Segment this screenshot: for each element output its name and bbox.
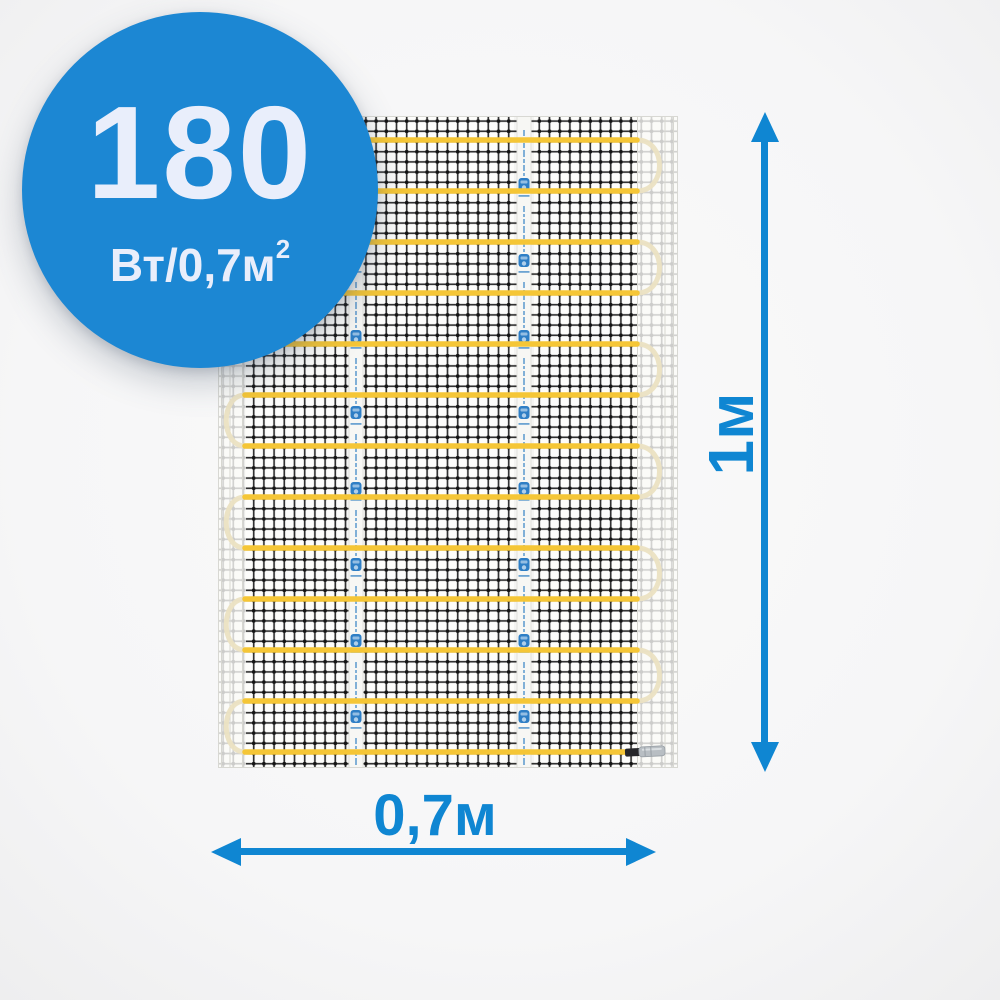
tape-brand-logo-icon xyxy=(519,634,530,647)
power-unit-superscript: 2 xyxy=(276,234,290,264)
power-value: 180 xyxy=(87,92,313,213)
tape-brand-logo-icon xyxy=(351,558,362,571)
tape-brand-logo-icon xyxy=(351,634,362,647)
tape-brand-logo-icon xyxy=(519,558,530,571)
arrow-right-icon xyxy=(626,838,656,866)
tape-brand-logo-icon xyxy=(519,254,530,267)
tape-brand-logo-icon xyxy=(519,330,530,343)
tape-brand-logo-icon xyxy=(519,482,530,495)
arrow-down-icon xyxy=(751,742,779,772)
tape-brand-logo-icon xyxy=(351,330,362,343)
arrow-left-icon xyxy=(211,838,241,866)
power-unit: Вт/0,7м2 xyxy=(110,242,290,288)
width-dimension-label: 0,7м xyxy=(285,782,585,849)
tape-brand-logo-icon xyxy=(519,710,530,723)
tape-brand-logo-icon xyxy=(351,710,362,723)
tape-brand-logo-icon xyxy=(519,406,530,419)
width-dimension-line xyxy=(237,848,631,855)
product-image: 180 Вт/0,7м2 1м 0,7м xyxy=(0,0,1000,1000)
tape-brand-logo-icon xyxy=(351,406,362,419)
height-dimension-label: 1м xyxy=(691,334,771,534)
tape-brand-logo-icon xyxy=(351,482,362,495)
fixing-tape xyxy=(514,116,534,768)
power-badge: 180 Вт/0,7м2 xyxy=(22,12,378,368)
arrow-up-icon xyxy=(751,112,779,142)
